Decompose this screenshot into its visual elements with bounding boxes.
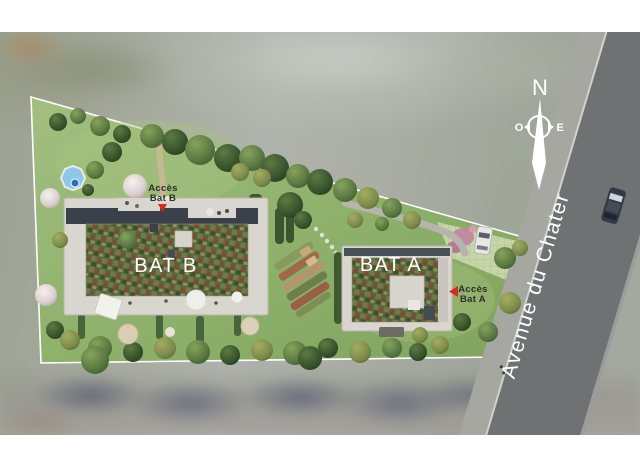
compass-west-arrow-icon [524, 123, 530, 131]
plan-overlay: Avenue du Chater [0, 32, 640, 435]
bat-b-label: BAT B [134, 255, 197, 277]
compass-east-label: E [556, 122, 563, 134]
site-plan-canvas: Avenue du Chater [0, 0, 640, 470]
acces-bat-a-line2: Bat A [460, 294, 486, 305]
compass-north-label: N [532, 75, 548, 100]
aerial-photo: Avenue du Chater [0, 32, 640, 435]
swimming-pool [61, 166, 85, 190]
bat-a-label: BAT A [360, 254, 422, 276]
acces-bat-b-line2: Bat B [150, 193, 176, 204]
compass-west-label: O [515, 122, 524, 134]
